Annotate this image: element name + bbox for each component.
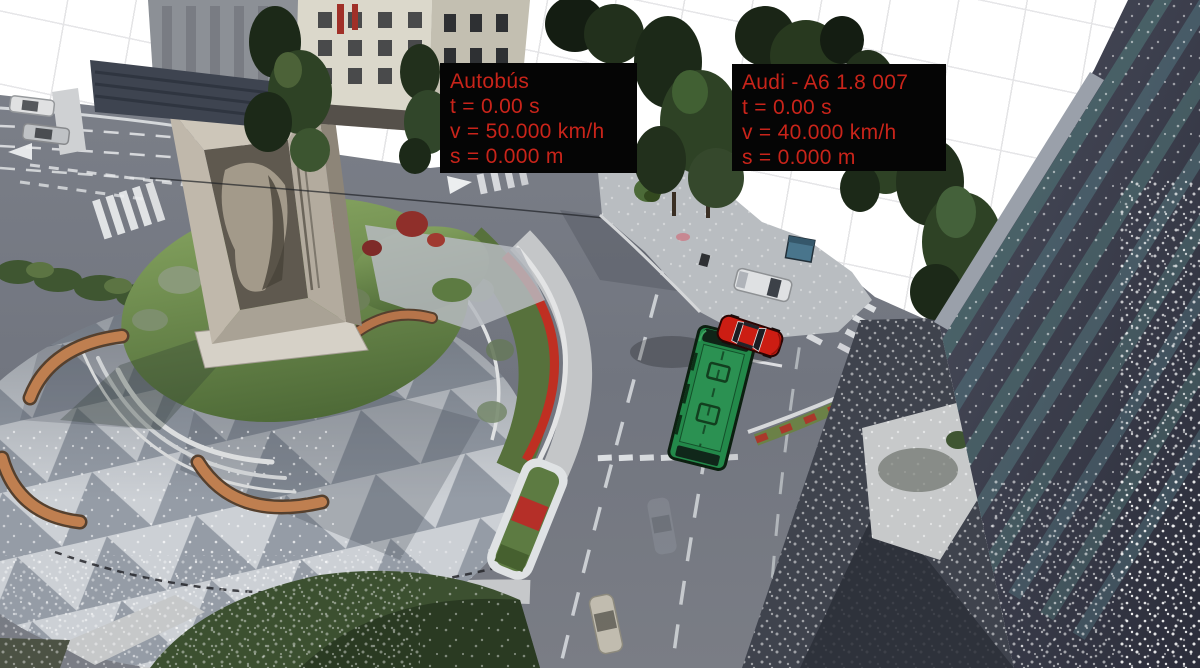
label-title: Autobús	[450, 69, 627, 94]
label-distance: s = 0.000 m	[742, 145, 936, 170]
vehicle-info-label-bus[interactable]: Autobús t = 0.00 s v = 50.000 km/h s = 0…	[440, 63, 637, 173]
label-speed: v = 50.000 km/h	[450, 119, 627, 144]
tree	[545, 0, 644, 64]
label-time: t = 0.00 s	[742, 95, 936, 120]
red-bush	[362, 240, 382, 256]
red-bush	[427, 233, 445, 247]
label-distance: s = 0.000 m	[450, 144, 627, 169]
simulation-3d-viewport[interactable]: Autobús t = 0.00 s v = 50.000 km/h s = 0…	[0, 0, 1200, 668]
kiosk	[785, 236, 814, 262]
label-time: t = 0.00 s	[450, 94, 627, 119]
vehicle-info-label-car[interactable]: Audi - A6 1.8 007 t = 0.00 s v = 40.000 …	[732, 64, 946, 171]
label-speed: v = 40.000 km/h	[742, 120, 936, 145]
label-title: Audi - A6 1.8 007	[742, 70, 936, 95]
pointcloud-noise	[0, 555, 420, 668]
red-bush	[396, 211, 428, 237]
pink-mark	[676, 233, 690, 241]
